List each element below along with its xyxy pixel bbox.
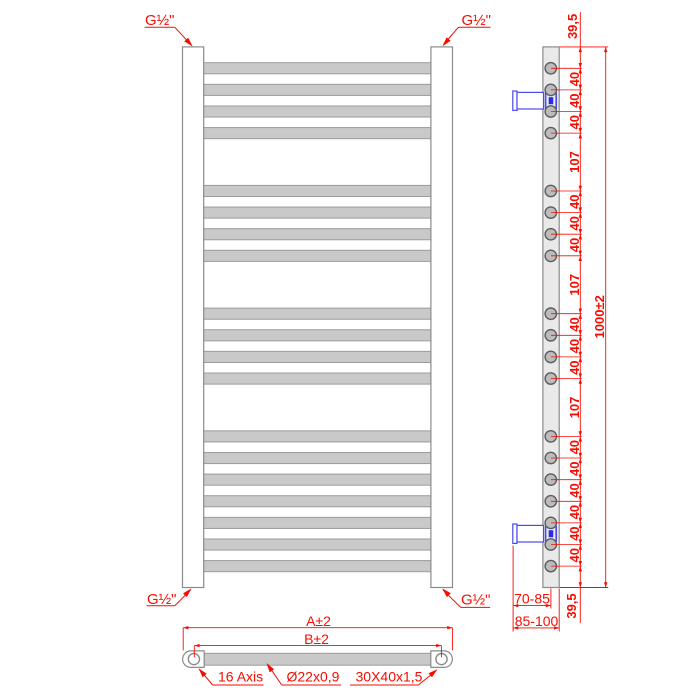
svg-text:G½": G½" xyxy=(462,12,492,29)
svg-text:30X40x1,5: 30X40x1,5 xyxy=(356,669,423,685)
svg-text:40: 40 xyxy=(567,216,582,230)
svg-text:85-100: 85-100 xyxy=(515,613,559,629)
svg-text:40: 40 xyxy=(567,483,582,497)
svg-text:40: 40 xyxy=(567,360,582,374)
svg-text:G½": G½" xyxy=(461,592,491,609)
svg-text:40: 40 xyxy=(567,440,582,454)
svg-text:70-85: 70-85 xyxy=(514,591,550,607)
svg-text:40: 40 xyxy=(567,339,582,353)
svg-text:40: 40 xyxy=(567,72,582,86)
svg-text:107: 107 xyxy=(567,397,582,419)
svg-text:40: 40 xyxy=(567,526,582,540)
svg-text:G½": G½" xyxy=(145,12,175,29)
svg-text:40: 40 xyxy=(567,115,582,129)
svg-text:40: 40 xyxy=(567,317,582,331)
svg-text:Ø22x0,9: Ø22x0,9 xyxy=(287,669,340,685)
svg-text:B±2: B±2 xyxy=(304,631,329,647)
svg-text:1000±2: 1000±2 xyxy=(592,295,607,338)
svg-text:40: 40 xyxy=(567,462,582,476)
svg-text:39,5: 39,5 xyxy=(564,593,579,618)
svg-text:107: 107 xyxy=(567,274,582,296)
svg-text:40: 40 xyxy=(567,505,582,519)
svg-text:40: 40 xyxy=(567,195,582,209)
svg-text:A±2: A±2 xyxy=(306,613,331,629)
svg-text:40: 40 xyxy=(567,548,582,562)
svg-text:40: 40 xyxy=(567,238,582,252)
svg-text:39,5: 39,5 xyxy=(565,14,580,39)
svg-text:107: 107 xyxy=(567,151,582,173)
svg-text:40: 40 xyxy=(567,93,582,107)
svg-text:16 Axis: 16 Axis xyxy=(218,669,263,685)
